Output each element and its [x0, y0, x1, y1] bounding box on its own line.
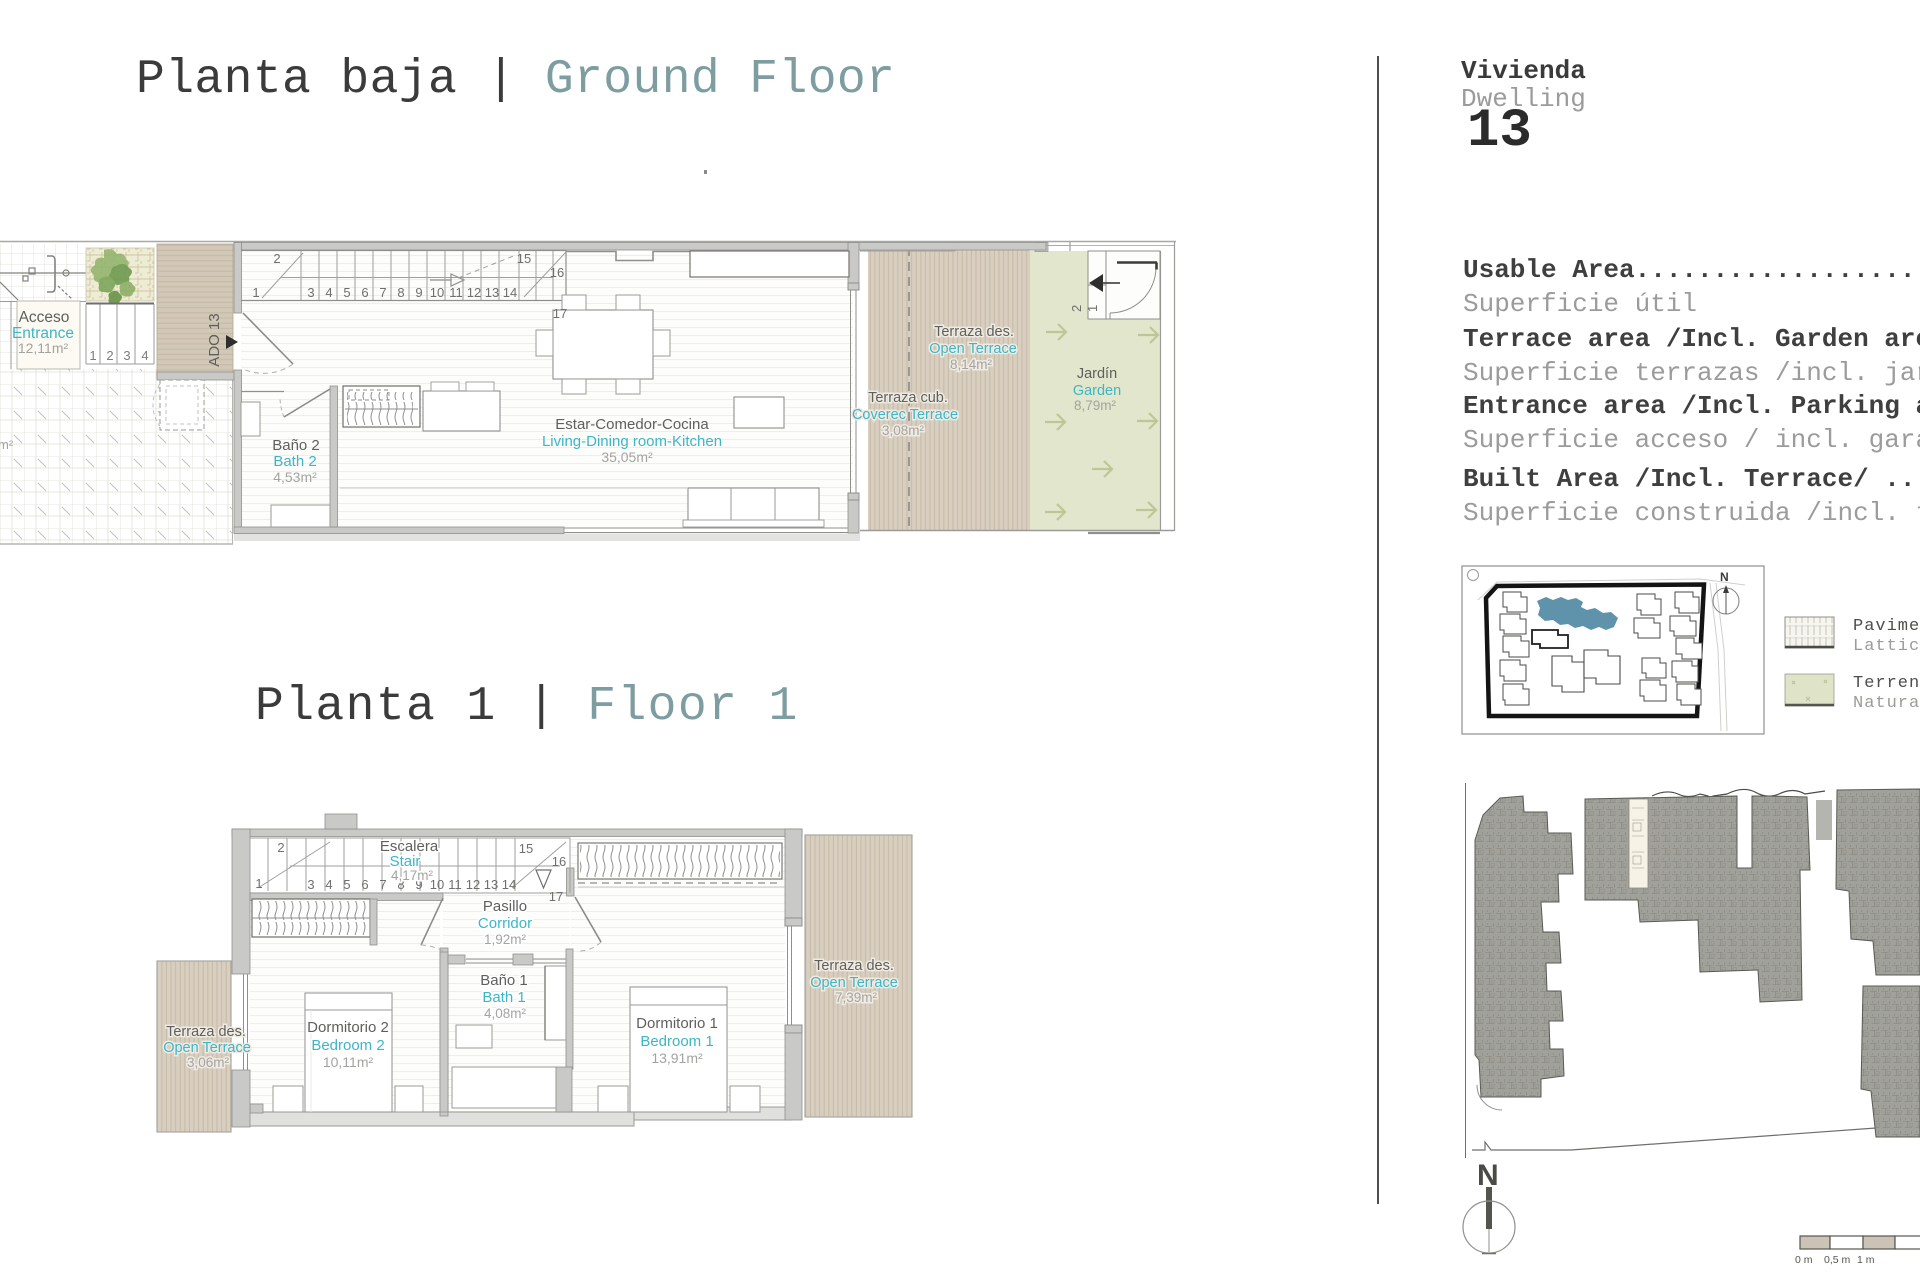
svg-text:16: 16 [552, 854, 566, 869]
svg-text:Dormitorio 2: Dormitorio 2 [307, 1019, 389, 1036]
svg-text:12: 12 [466, 877, 480, 892]
svg-text:4: 4 [325, 285, 332, 300]
svg-text:12: 12 [467, 285, 481, 300]
svg-text:10,11m²: 10,11m² [323, 1054, 374, 1070]
svg-text:14: 14 [503, 285, 517, 300]
svg-text:Bedroom 2: Bedroom 2 [311, 1037, 384, 1054]
svg-text:15: 15 [519, 841, 533, 856]
svg-text:35,05m²: 35,05m² [601, 449, 653, 465]
svg-text:4,08m²: 4,08m² [484, 1006, 527, 1021]
svg-text:Open Terrace: Open Terrace [929, 341, 1017, 357]
svg-text:Dormitorio 1: Dormitorio 1 [636, 1015, 718, 1032]
svg-text:7,39m²: 7,39m² [835, 990, 878, 1005]
svg-text:12,11m²: 12,11m² [18, 340, 69, 356]
svg-text:4: 4 [141, 348, 148, 363]
svg-text:3: 3 [307, 877, 314, 892]
svg-text:Corridor: Corridor [478, 915, 532, 932]
svg-text:8: 8 [397, 285, 404, 300]
svg-text:13: 13 [485, 285, 499, 300]
svg-text:0 m: 0 m [1795, 1254, 1813, 1266]
svg-text:17: 17 [549, 889, 563, 904]
svg-text:N: N [1720, 570, 1729, 584]
svg-text:13: 13 [484, 877, 498, 892]
svg-text:8,79m²: 8,79m² [1074, 398, 1117, 413]
svg-text:Terraza des.: Terraza des. [166, 1024, 246, 1040]
svg-text:3: 3 [307, 285, 314, 300]
svg-text:7: 7 [379, 285, 386, 300]
svg-text:15: 15 [517, 251, 531, 266]
svg-text:11: 11 [449, 285, 463, 300]
svg-text:4,17m²: 4,17m² [391, 868, 434, 883]
svg-text:16: 16 [550, 265, 564, 280]
svg-text:Terreno: Terreno [1853, 674, 1920, 693]
svg-text:10: 10 [430, 285, 444, 300]
svg-text:1 m: 1 m [1857, 1254, 1875, 1266]
svg-text:13,91m²: 13,91m² [651, 1050, 703, 1066]
svg-text:m²: m² [0, 437, 14, 452]
svg-text:6: 6 [361, 285, 368, 300]
svg-text:Pavimento: Pavimento [1853, 617, 1920, 636]
svg-text:9: 9 [415, 285, 422, 300]
svg-text:8,14m²: 8,14m² [950, 357, 993, 372]
svg-text:Terraza des.: Terraza des. [814, 958, 894, 974]
svg-text:Open Terrace: Open Terrace [163, 1040, 251, 1056]
svg-text:0,5 m: 0,5 m [1824, 1254, 1851, 1266]
svg-text:1: 1 [89, 348, 96, 363]
svg-text:Natural: Natural [1853, 694, 1920, 713]
svg-text:1,92m²: 1,92m² [484, 932, 527, 947]
svg-text:3,08m²: 3,08m² [882, 423, 925, 438]
svg-text:2: 2 [273, 251, 280, 266]
svg-text:Lattice: Lattice [1853, 637, 1920, 656]
svg-text:Baño 1: Baño 1 [480, 972, 528, 989]
svg-text:Pasillo: Pasillo [483, 898, 527, 915]
svg-text:5: 5 [343, 285, 350, 300]
svg-text:Terraza cub.: Terraza cub. [868, 390, 948, 406]
svg-text:1: 1 [1085, 305, 1100, 312]
svg-text:Terraza des.: Terraza des. [934, 324, 1014, 340]
svg-text:4: 4 [325, 877, 332, 892]
svg-text:1: 1 [252, 285, 259, 300]
svg-text:2: 2 [1069, 305, 1084, 312]
svg-text:11: 11 [448, 877, 462, 892]
svg-text:Bath 2: Bath 2 [273, 453, 316, 470]
svg-text:2: 2 [106, 348, 113, 363]
svg-text:1: 1 [255, 876, 262, 891]
svg-text:Estar-Comedor-Cocina: Estar-Comedor-Cocina [555, 416, 709, 433]
svg-text:7: 7 [379, 877, 386, 892]
svg-text:3: 3 [123, 348, 130, 363]
svg-text:Jardín: Jardín [1077, 366, 1117, 382]
svg-text:Bath 1: Bath 1 [482, 989, 525, 1006]
svg-text:ADO 13: ADO 13 [206, 313, 223, 366]
svg-text:Acceso: Acceso [19, 309, 70, 326]
svg-text:4,53m²: 4,53m² [273, 469, 317, 485]
svg-text:Living-Dining room-Kitchen: Living-Dining room-Kitchen [542, 433, 722, 450]
svg-text:6: 6 [361, 877, 368, 892]
svg-text:Open Terrace: Open Terrace [810, 975, 898, 991]
svg-text:Baño 2: Baño 2 [272, 437, 320, 454]
svg-text:14: 14 [502, 877, 516, 892]
svg-text:3,06m²: 3,06m² [187, 1055, 230, 1070]
svg-text:17: 17 [553, 306, 567, 321]
svg-text:5: 5 [343, 877, 350, 892]
svg-text:Coverec Terrace: Coverec Terrace [852, 407, 958, 423]
svg-text:Garden: Garden [1073, 383, 1121, 399]
svg-text:Bedroom 1: Bedroom 1 [640, 1033, 713, 1050]
svg-text:2: 2 [277, 840, 284, 855]
